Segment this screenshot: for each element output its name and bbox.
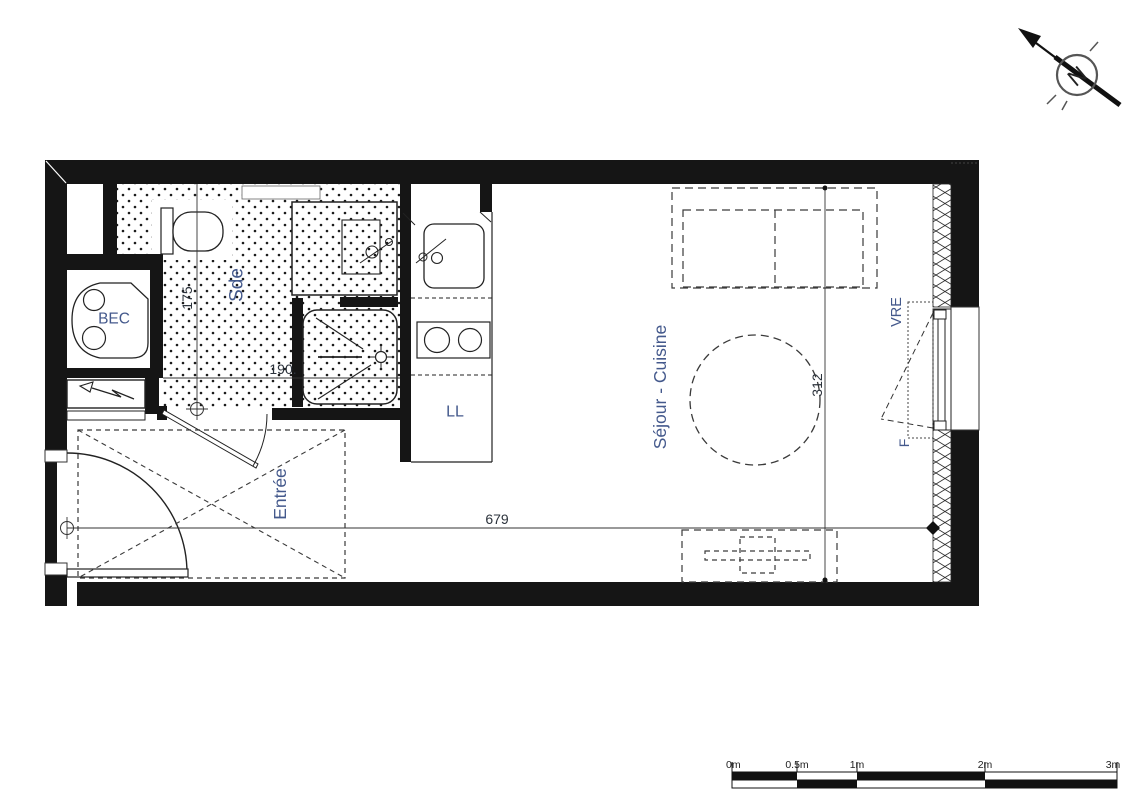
north-compass: N	[1018, 28, 1120, 110]
dim-marker-312-top	[823, 186, 828, 191]
scale-seg-top-2	[857, 772, 985, 780]
bathroom-label: Sde	[227, 268, 248, 302]
compass-tick-sw2	[1062, 101, 1067, 110]
entry-door-swing-arc	[67, 453, 187, 573]
window-cap-bottom	[934, 421, 946, 430]
roller-shutter-box	[908, 302, 933, 438]
water-heater-valve-bottom	[83, 327, 106, 350]
window-label: F	[896, 439, 912, 448]
desk-outer	[682, 530, 837, 582]
electrical-box	[67, 380, 145, 408]
entry-door-leaf	[67, 569, 188, 577]
duct-niche	[67, 184, 103, 254]
counter-mitre-right	[480, 212, 491, 222]
wall-right-lower	[951, 430, 979, 606]
scale-label-0m: 0m	[726, 759, 741, 771]
living-kitchen-label: Séjour - Cuisine	[650, 325, 670, 450]
wall-bathroom-south	[272, 408, 411, 420]
wall-kitchen	[400, 184, 411, 462]
wall-duct-right	[103, 184, 117, 255]
casement-swing-line-2	[881, 419, 933, 428]
dim-marker-312-bottom	[823, 578, 828, 583]
scale-bar: 0m 0.5m 1m 2m 3m	[726, 759, 1121, 788]
shower-head	[376, 352, 387, 363]
desk-top	[705, 551, 810, 560]
bathroom-door-leaf	[162, 410, 258, 468]
stove-burner-right	[459, 329, 482, 352]
toilet-bowl	[173, 212, 223, 251]
dim-text-175: 175	[179, 286, 195, 310]
scale-seg-bottom-2	[985, 780, 1117, 788]
dining-table	[690, 335, 820, 465]
wall-left-lower	[45, 460, 57, 570]
kitchen-sink	[424, 224, 484, 288]
kitchen-niche	[411, 184, 480, 212]
scale-seg-top-1	[732, 772, 797, 780]
window-frame	[933, 309, 951, 430]
entry-jamb-bottom	[45, 563, 67, 575]
bathroom-door-swing-arc	[253, 414, 267, 466]
entry-label: Entrée	[270, 468, 290, 520]
stove	[417, 322, 490, 358]
insulation-hatch-upper	[933, 184, 951, 307]
toilet-tank	[161, 208, 173, 254]
scale-seg-bottom-1	[797, 780, 857, 788]
desk-chair	[740, 537, 775, 573]
insulation-hatch-lower	[933, 430, 951, 582]
wall-bec-right	[150, 254, 163, 368]
sink-faucet-knob	[432, 253, 443, 264]
floor-plan-drawing: Sde BEC LL Séjour - Cuisine Entrée VRE F…	[0, 0, 1135, 800]
wall-shower-top	[340, 297, 398, 307]
window-bay	[951, 307, 979, 430]
wall-kitchen-niche-right	[480, 184, 492, 212]
dim-text-190: 190.	[269, 361, 296, 377]
scale-label-3m: 3m	[1106, 759, 1121, 771]
wall-left-upper	[45, 160, 67, 452]
stove-burner-left	[425, 328, 450, 353]
shutter-label: VRE	[889, 297, 905, 327]
wall-shower-left	[292, 298, 303, 407]
closet-front-lines	[67, 411, 145, 420]
wall-right-upper	[951, 160, 979, 307]
floor-plan-page: Sde BEC LL Séjour - Cuisine Entrée VRE F…	[0, 0, 1135, 800]
window-cap-top	[934, 310, 946, 319]
sink-faucet-line	[416, 239, 446, 263]
compass-tick-ne	[1090, 42, 1098, 51]
bec-label: BEC	[98, 311, 130, 328]
water-heater-valve-top	[84, 290, 105, 311]
dim-text-679: 679	[485, 511, 509, 527]
casement-swing-line-1	[881, 313, 933, 419]
entry-jamb-top	[45, 450, 67, 462]
wall-bec-top	[67, 254, 150, 270]
wall-bottom	[77, 582, 979, 606]
compass-tick-sw1	[1047, 95, 1056, 104]
bathroom-shelf	[242, 186, 320, 199]
dim-text-312: 312	[809, 373, 825, 397]
wall-elec-stub	[145, 378, 159, 414]
laundry-label: LL	[446, 404, 464, 421]
wall-top	[45, 160, 979, 184]
wall-bec-bottom	[45, 368, 163, 378]
sofa-inner	[683, 210, 863, 287]
